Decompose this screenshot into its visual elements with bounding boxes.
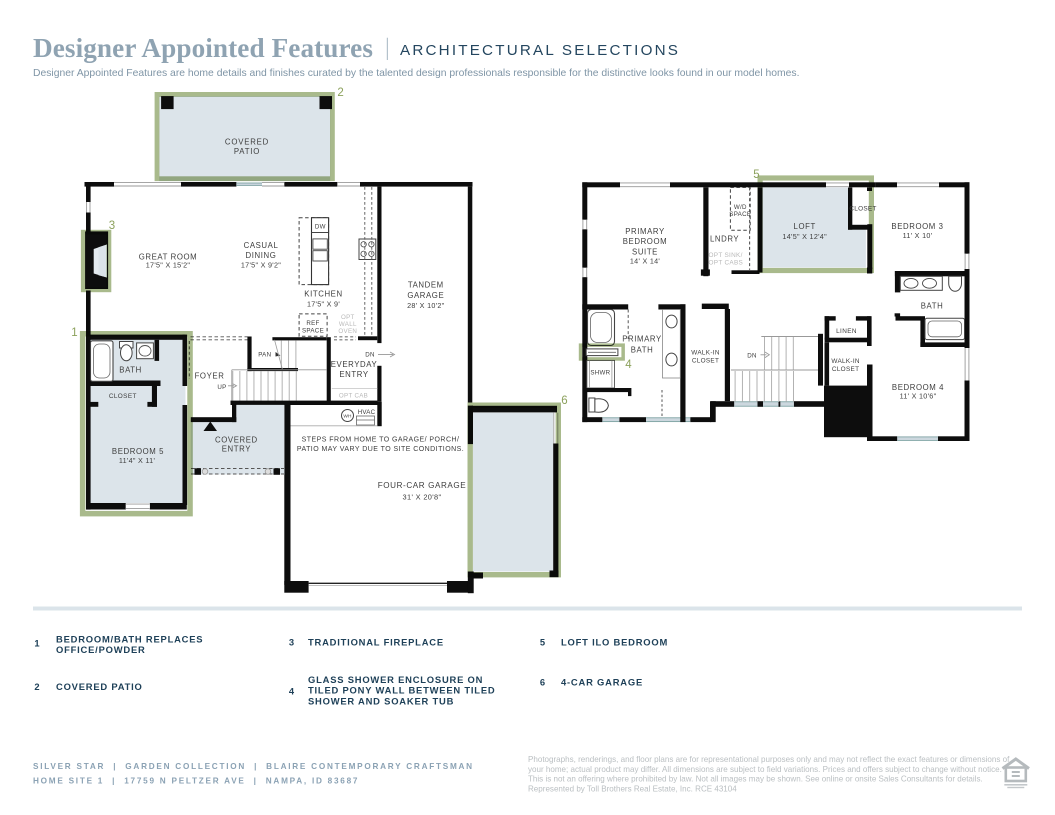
svg-text:DINING: DINING (246, 251, 277, 260)
svg-text:OPT: OPT (341, 314, 355, 321)
svg-text:OFFICE/POWDER: OFFICE/POWDER (56, 644, 146, 655)
svg-text:CLOSET: CLOSET (109, 393, 137, 400)
svg-text:4: 4 (625, 359, 632, 371)
svg-text:28' X 10'2": 28' X 10'2" (407, 301, 445, 310)
svg-text:LOFT ILO BEDROOM: LOFT ILO BEDROOM (561, 637, 668, 648)
svg-text:your home; actual product may: your home; actual product may differ. Al… (528, 765, 1002, 774)
svg-text:CLOSET: CLOSET (692, 357, 719, 364)
svg-text:W/D: W/D (734, 204, 747, 211)
svg-text:PATIO MAY VARY DUE TO SITE CON: PATIO MAY VARY DUE TO SITE CONDITIONS. (297, 446, 464, 453)
svg-text:FOYER: FOYER (195, 372, 225, 381)
svg-text:SHWR: SHWR (590, 370, 610, 377)
svg-text:ARCHITECTURAL SELECTIONS: ARCHITECTURAL SELECTIONS (400, 42, 680, 59)
svg-text:4: 4 (289, 686, 295, 697)
svg-text:SUITE: SUITE (632, 247, 658, 256)
svg-text:SHOWER AND SOAKER TUB: SHOWER AND SOAKER TUB (308, 695, 454, 706)
svg-text:BEDROOM: BEDROOM (623, 237, 668, 246)
svg-text:FOUR-CAR GARAGE: FOUR-CAR GARAGE (378, 481, 467, 490)
svg-text:14'5" X 12'4": 14'5" X 12'4" (782, 232, 827, 241)
svg-text:2: 2 (337, 87, 343, 99)
svg-text:Designer Appointed Features: Designer Appointed Features (33, 33, 373, 63)
svg-text:SPACE: SPACE (302, 328, 324, 335)
svg-text:TANDEM: TANDEM (408, 281, 444, 290)
svg-text:KITCHEN: KITCHEN (304, 289, 342, 298)
svg-text:17'5" X 15'2": 17'5" X 15'2" (146, 261, 191, 270)
svg-text:BATH: BATH (119, 365, 142, 374)
svg-text:BATH: BATH (631, 345, 654, 354)
svg-text:EVERYDAY: EVERYDAY (331, 360, 378, 369)
svg-text:REF: REF (306, 320, 319, 327)
svg-text:TRADITIONAL FIREPLACE: TRADITIONAL FIREPLACE (308, 637, 444, 648)
svg-text:This is not an offering where: This is not an offering where prohibited… (528, 775, 983, 784)
svg-text:COVERED PATIO: COVERED PATIO (56, 681, 143, 692)
svg-text:3: 3 (109, 220, 115, 232)
svg-text:14' X 14': 14' X 14' (630, 257, 661, 266)
svg-text:WALK-IN: WALK-IN (691, 349, 720, 356)
svg-text:LOFT: LOFT (794, 222, 816, 231)
svg-text:PATIO: PATIO (234, 147, 260, 156)
svg-text:Represented by Toll Brothers R: Represented by Toll Brothers Real Estate… (528, 784, 737, 793)
svg-text:11'4" X 11': 11'4" X 11' (119, 456, 156, 465)
svg-text:WH: WH (343, 414, 352, 420)
svg-text:TILED PONY WALL BETWEEN TILED: TILED PONY WALL BETWEEN TILED (308, 685, 495, 696)
svg-text:DW: DW (315, 224, 326, 231)
svg-text:6: 6 (540, 676, 545, 687)
svg-text:HVAC: HVAC (358, 409, 376, 416)
svg-text:LINEN: LINEN (836, 328, 857, 335)
svg-text:OPT CAB: OPT CAB (339, 393, 368, 400)
svg-text:GLASS SHOWER ENCLOSURE ON: GLASS SHOWER ENCLOSURE ON (308, 674, 483, 685)
svg-text:STEPS FROM HOME TO GARAGE/ POR: STEPS FROM HOME TO GARAGE/ PORCH/ (302, 437, 460, 444)
svg-text:1: 1 (34, 638, 39, 649)
svg-text:ENTRY: ENTRY (339, 370, 368, 379)
svg-text:PRIMARY: PRIMARY (625, 227, 665, 236)
svg-text:DN: DN (365, 352, 375, 359)
svg-text:1: 1 (71, 327, 77, 339)
svg-text:5: 5 (753, 169, 759, 181)
svg-text:CASUAL: CASUAL (244, 241, 279, 250)
svg-text:4-CAR GARAGE: 4-CAR GARAGE (561, 676, 643, 687)
svg-text:UP: UP (217, 384, 226, 391)
svg-text:Photographs, renderings, and f: Photographs, renderings, and floor plans… (528, 755, 1010, 764)
svg-text:31' X 20'8": 31' X 20'8" (403, 492, 442, 501)
svg-text:5: 5 (540, 637, 545, 648)
svg-text:PAN: PAN (258, 351, 271, 358)
svg-text:PRIMARY: PRIMARY (622, 335, 662, 344)
svg-text:WALK-IN: WALK-IN (831, 358, 860, 365)
svg-text:GARAGE: GARAGE (407, 291, 444, 300)
svg-text:DN: DN (747, 352, 757, 359)
svg-text:6: 6 (561, 395, 567, 407)
svg-text:2: 2 (34, 681, 39, 692)
svg-text:|: | (385, 35, 390, 61)
svg-text:COVERED: COVERED (215, 436, 258, 445)
svg-text:OVEN: OVEN (338, 328, 357, 335)
svg-text:3: 3 (289, 637, 294, 648)
svg-text:OPT CABS: OPT CABS (709, 260, 744, 267)
svg-text:17'5" X 9': 17'5" X 9' (307, 299, 340, 308)
svg-text:BEDROOM/BATH REPLACES: BEDROOM/BATH REPLACES (56, 633, 203, 644)
svg-text:CLOSET: CLOSET (832, 366, 859, 373)
svg-text:LNDRY: LNDRY (710, 235, 739, 244)
svg-text:BATH: BATH (921, 301, 944, 310)
svg-text:WALL: WALL (339, 321, 357, 328)
svg-text:11' X 10': 11' X 10' (903, 231, 933, 240)
svg-text:HOME SITE 1 | 17759 N PELTZE: HOME SITE 1 | 17759 N PELTZER AVE | NAMP… (33, 777, 359, 786)
svg-text:COVERED: COVERED (225, 137, 269, 146)
svg-text:SILVER STAR | GARDEN COLLECT: SILVER STAR | GARDEN COLLECTION | BLAIRE… (33, 762, 474, 771)
svg-text:OPT SINK/: OPT SINK/ (709, 252, 743, 259)
svg-text:Designer Appointed Features ar: Designer Appointed Features are home det… (33, 68, 799, 79)
svg-text:SPACE: SPACE (729, 211, 751, 218)
svg-text:ENTRY: ENTRY (222, 445, 251, 454)
svg-text:BEDROOM 3: BEDROOM 3 (891, 222, 943, 231)
svg-text:17'5" X 9'2": 17'5" X 9'2" (241, 261, 281, 270)
svg-text:11' X 10'6": 11' X 10'6" (900, 392, 937, 401)
